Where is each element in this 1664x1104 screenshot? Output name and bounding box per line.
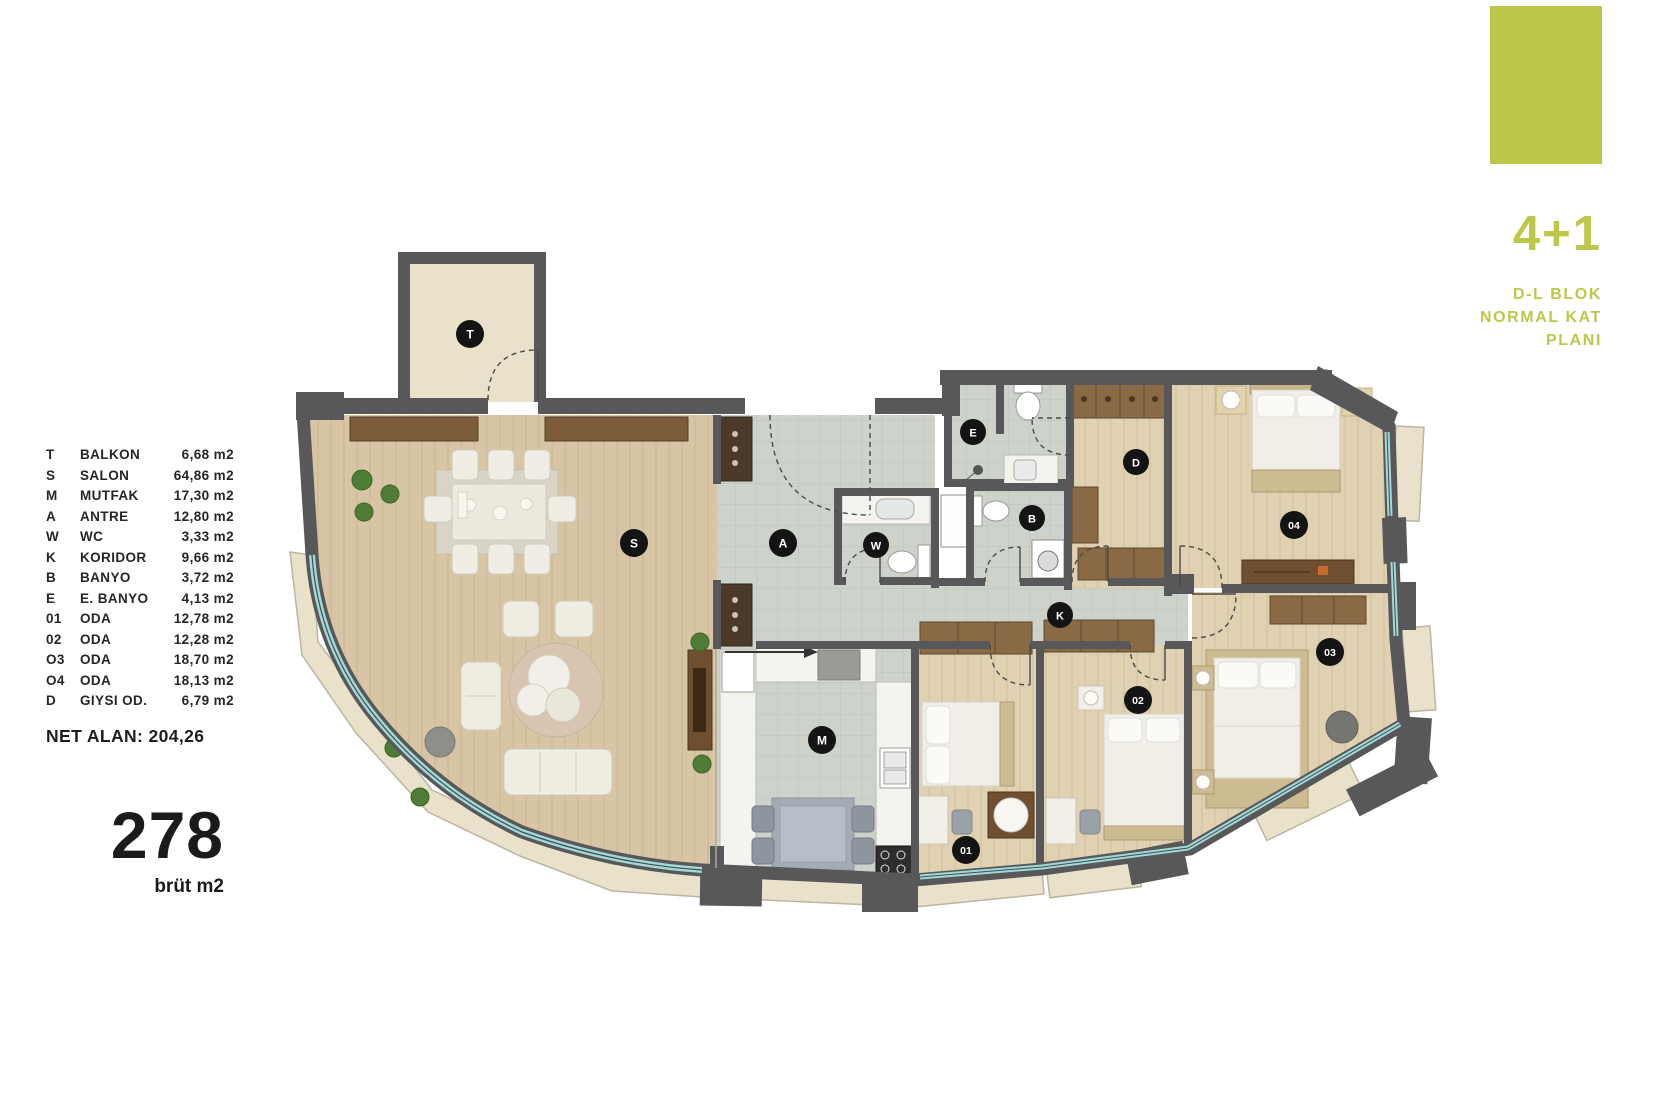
pillow (1146, 718, 1180, 742)
exterior-wall (538, 398, 745, 414)
armchair (555, 601, 593, 637)
svg-text:01: 01 (960, 845, 972, 857)
interior-wall (935, 578, 985, 586)
interior-wall (996, 372, 1004, 434)
svg-text:03: 03 (1324, 647, 1336, 659)
pillar (862, 880, 918, 912)
room-label-oda1: 01 (952, 836, 980, 864)
svg-text:E: E (969, 428, 976, 440)
lamp (1222, 391, 1240, 409)
interior-wall (1036, 641, 1044, 869)
svg-text:S: S (630, 537, 638, 551)
interior-wall (1066, 372, 1074, 487)
pillar (1382, 517, 1408, 564)
room-label-oda2: 02 (1124, 686, 1152, 714)
svg-text:T: T (466, 328, 474, 342)
pillow (1108, 718, 1142, 742)
sideboard (350, 417, 478, 441)
svg-text:D: D (1132, 458, 1140, 470)
room-label-ebanyo: E (960, 419, 986, 445)
svg-text:A: A (779, 537, 788, 551)
round-table (1326, 711, 1358, 743)
pillar (700, 871, 763, 906)
shaft (941, 495, 969, 547)
interior-wall (713, 580, 721, 649)
toilet (983, 501, 1009, 521)
svg-text:02: 02 (1132, 695, 1144, 707)
toilet-tank (918, 545, 930, 579)
wardrobe (1270, 596, 1366, 624)
balcony-wall (398, 252, 410, 402)
room-label-salon: S (620, 529, 648, 557)
bed-foot-bench (1104, 826, 1184, 840)
exterior-wall (296, 392, 344, 420)
interior-wall (838, 488, 935, 496)
bed-foot-bench (1252, 470, 1340, 492)
interior-wall (966, 487, 974, 582)
pillow (1257, 395, 1295, 417)
svg-text:K: K (1056, 611, 1064, 623)
interior-wall (880, 577, 935, 585)
svg-text:W: W (871, 541, 882, 553)
bed-foot-bench (1000, 702, 1014, 786)
sink-basin (884, 770, 906, 784)
console-decor (1318, 566, 1328, 575)
lamp (1084, 691, 1098, 705)
interior-wall (713, 415, 721, 484)
interior-wall (931, 488, 939, 588)
room-label-oda3: 03 (1316, 638, 1344, 666)
interior-wall (834, 488, 842, 585)
lamp (1196, 775, 1210, 789)
interior-wall (911, 641, 919, 880)
room-label-oda4: 04 (1280, 511, 1308, 539)
wardrobe (920, 622, 1032, 654)
room-label-dressing: D (1123, 449, 1149, 475)
pillow (1260, 662, 1296, 688)
kitchen-appliance (818, 650, 860, 680)
interior-wall (966, 483, 1068, 491)
pillar (1346, 750, 1438, 817)
interior-wall (1164, 372, 1172, 596)
balcony-wall (398, 252, 546, 264)
room-label-banyo: B (1019, 505, 1045, 531)
side-table (425, 727, 455, 757)
balcony-wall (534, 252, 546, 402)
room-label-mutfak: M (808, 726, 836, 754)
desk-chair (952, 810, 972, 834)
desk (1046, 798, 1076, 844)
coffee-table (517, 684, 549, 716)
tv-screen (693, 668, 706, 732)
interior-wall (944, 372, 952, 487)
toilet (1016, 392, 1040, 420)
room-label-balkon: T (456, 320, 484, 348)
interior-wall (756, 641, 990, 649)
interior-wall (1168, 584, 1180, 593)
corner-table (994, 798, 1028, 832)
svg-text:04: 04 (1288, 520, 1300, 532)
pillow (1218, 662, 1258, 688)
kitchen-cabinet (722, 652, 754, 692)
kitchen-table-top (780, 806, 846, 862)
interior-wall (1222, 584, 1397, 593)
coffee-table (546, 688, 580, 722)
room-label-koridor: K (1047, 602, 1073, 628)
sideboard (545, 417, 688, 441)
sink-basin (884, 752, 906, 768)
bath-basin (1014, 460, 1036, 480)
floor-plan: T S A W E B D K (0, 0, 1664, 1104)
lamp (1196, 671, 1210, 685)
pillow (926, 706, 950, 744)
sofa (504, 749, 612, 795)
room-label-wc: W (863, 532, 889, 558)
svg-text:M: M (817, 734, 827, 748)
svg-text:B: B (1028, 514, 1036, 526)
pillow (926, 746, 950, 784)
room-label-antre: A (769, 529, 797, 557)
desk (918, 796, 948, 844)
washer-drum (1038, 551, 1058, 571)
toilet (888, 551, 916, 573)
armchair (503, 601, 539, 637)
wc-basin (876, 499, 914, 519)
interior-wall (1030, 641, 1130, 649)
interior-wall (1184, 641, 1192, 849)
desk-chair (1080, 810, 1100, 834)
interior-wall (1064, 483, 1072, 590)
